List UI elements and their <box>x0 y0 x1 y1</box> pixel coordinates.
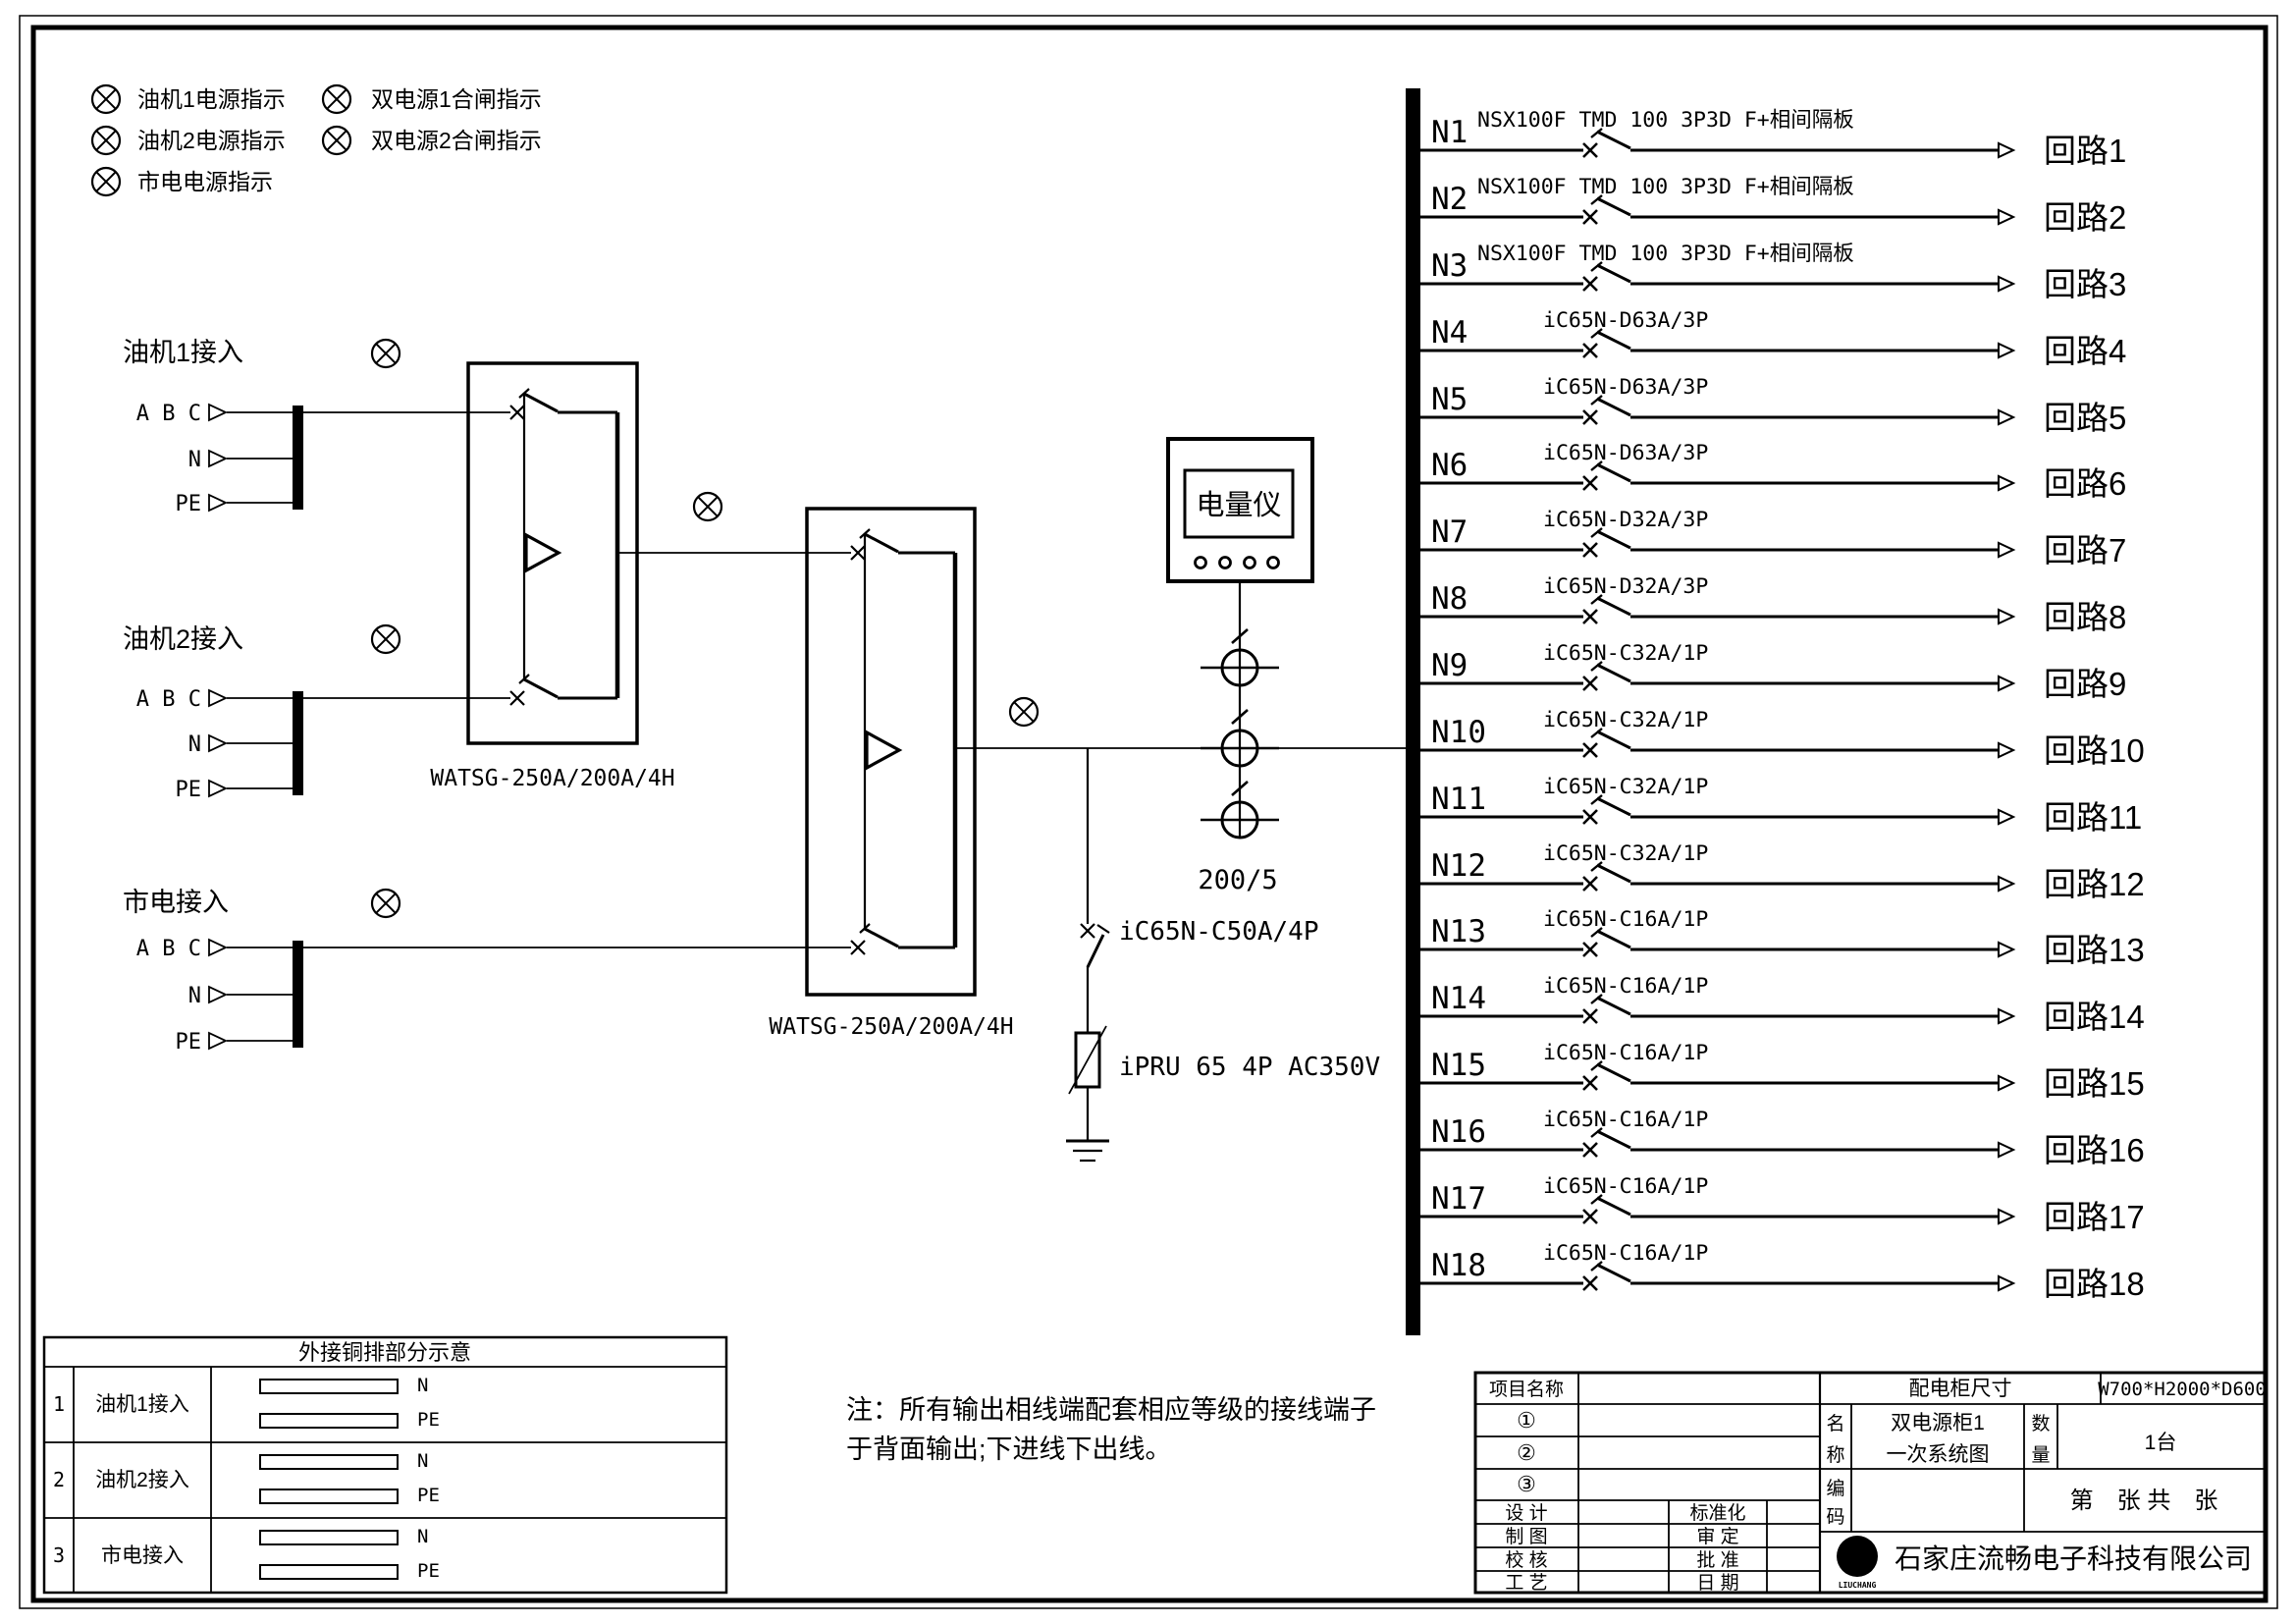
ats-model-label: WATSG-250A/200A/4H <box>769 1014 1013 1040</box>
svg-text:3: 3 <box>53 1543 65 1567</box>
note-line2: 于背面输出;下进线下出线。 <box>846 1435 1172 1464</box>
svg-text:市电接入: 市电接入 <box>101 1544 184 1567</box>
svg-text:N11: N11 <box>1431 782 1486 817</box>
breaker-icon <box>1583 1128 1630 1157</box>
lamp-icon <box>323 85 350 113</box>
breaker-icon <box>1583 262 1630 291</box>
svg-text:N14: N14 <box>1431 981 1486 1016</box>
meter-button-icon <box>1220 558 1231 568</box>
svg-text:N5: N5 <box>1431 382 1468 417</box>
copper-bar <box>260 1531 398 1544</box>
feeder-arrow-icon <box>1999 1076 2013 1090</box>
feeder-arrow-icon <box>1999 743 2013 757</box>
svg-text:回路7: 回路7 <box>2044 532 2126 568</box>
svg-text:NSX100F TMD 100 3P3D F+相间隔板: NSX100F TMD 100 3P3D F+相间隔板 <box>1477 175 1854 199</box>
svg-text:②: ② <box>1517 1440 1536 1465</box>
meter-button-icon <box>1268 558 1279 568</box>
drawing-name-line2: 一次系统图 <box>1887 1443 1990 1466</box>
distribution-busbar <box>1406 88 1420 1335</box>
lamp-icon <box>92 127 120 154</box>
lamp-icon <box>694 493 721 520</box>
circuit-row: N1NSX100F TMD 100 3P3D F+相间隔板回路1 <box>1420 108 2126 169</box>
svg-text:iC65N-C32A/1P: iC65N-C32A/1P <box>1543 841 1708 866</box>
svg-text:量: 量 <box>2031 1445 2050 1466</box>
svg-text:回路14: 回路14 <box>2044 999 2145 1035</box>
contact-blade <box>865 534 898 552</box>
svg-text:N18: N18 <box>1431 1248 1486 1283</box>
legend-item: 油机1电源指示 <box>137 86 286 112</box>
schematic-sheet: 油机1电源指示 油机2电源指示 市电电源指示 双电源1合闸指示 双电源2合闸指示… <box>0 0 2296 1624</box>
phase-label: A B C <box>136 937 201 961</box>
svg-text:回路12: 回路12 <box>2044 866 2145 902</box>
circuit-row: N6iC65N-D63A/3P回路6 <box>1420 441 2126 502</box>
feeder-arrow-icon <box>1999 677 2013 690</box>
legend: 油机1电源指示 油机2电源指示 市电电源指示 双电源1合闸指示 双电源2合闸指示 <box>92 85 542 195</box>
svg-text:N15: N15 <box>1431 1048 1486 1083</box>
svg-text:G: G <box>1849 1542 1865 1572</box>
circuit-row: N5iC65N-D63A/3P回路5 <box>1420 375 2126 436</box>
contact-blade <box>865 929 898 947</box>
legend-item: 市电电源指示 <box>137 169 273 194</box>
feeder-arrow-icon <box>1999 210 2013 224</box>
svg-text:回路17: 回路17 <box>2044 1199 2145 1235</box>
svg-text:N9: N9 <box>1431 648 1468 683</box>
svg-text:制 图: 制 图 <box>1505 1526 1547 1547</box>
svg-text:回路9: 回路9 <box>2044 666 2126 702</box>
feeder-arrow-icon <box>1999 344 2013 357</box>
svg-text:日 期: 日 期 <box>1696 1572 1738 1594</box>
spd-device-label: iPRU 65 4P AC350V <box>1119 1053 1380 1082</box>
svg-text:回路1: 回路1 <box>2044 133 2126 169</box>
circuit-row: N14iC65N-C16A/1P回路14 <box>1420 974 2145 1035</box>
copper-bar <box>260 1414 398 1428</box>
lamp-icon <box>92 85 120 113</box>
mechanism-arrow-icon <box>526 535 559 570</box>
breaker-icon <box>1583 928 1630 956</box>
feeder-arrow-icon <box>1999 277 2013 291</box>
terminal-arrow-icon <box>209 987 226 1002</box>
table-title: 外接铜排部分示意 <box>298 1340 471 1365</box>
circuit-row: N9iC65N-C32A/1P回路9 <box>1420 641 2126 702</box>
svg-text:回路11: 回路11 <box>2044 799 2142 836</box>
svg-text:iC65N-D63A/3P: iC65N-D63A/3P <box>1543 375 1708 400</box>
breaker-icon <box>1583 1262 1630 1290</box>
terminal-arrow-icon <box>209 735 226 751</box>
input-title: 市电接入 <box>123 888 229 917</box>
svg-text:名: 名 <box>1826 1413 1844 1435</box>
svg-text:批 准: 批 准 <box>1696 1549 1738 1571</box>
svg-text:N: N <box>417 1450 428 1472</box>
busbar <box>293 691 303 795</box>
terminal-arrow-icon <box>209 451 226 466</box>
circuit-row: N10iC65N-C32A/1P回路10 <box>1420 708 2145 769</box>
feeder-arrow-icon <box>1999 610 2013 623</box>
svg-text:回路16: 回路16 <box>2044 1132 2145 1168</box>
mechanism-arrow-icon <box>867 732 899 768</box>
svg-text:iC65N-C16A/1P: iC65N-C16A/1P <box>1543 907 1708 932</box>
transfer-switch-2: WATSG-250A/200A/4H <box>769 509 1013 1040</box>
power-meter: 电量仪 200/5 <box>1168 439 1312 895</box>
svg-text:审 定: 审 定 <box>1696 1526 1738 1547</box>
svg-text:回路15: 回路15 <box>2044 1065 2145 1102</box>
svg-text:iC65N-D63A/3P: iC65N-D63A/3P <box>1543 308 1708 333</box>
feeder-arrow-icon <box>1999 410 2013 424</box>
note-line1: 注：所有输出相线端配套相应等级的接线端子 <box>846 1395 1376 1425</box>
legend-item: 双电源2合闸指示 <box>371 128 542 153</box>
breaker-icon <box>1583 329 1630 357</box>
svg-text:iC65N-C32A/1P: iC65N-C32A/1P <box>1543 641 1708 666</box>
svg-text:iC65N-C16A/1P: iC65N-C16A/1P <box>1543 1041 1708 1065</box>
svg-text:N: N <box>417 1375 428 1396</box>
breaker-icon <box>1583 995 1630 1023</box>
svg-text:回路13: 回路13 <box>2044 932 2145 968</box>
lamp-icon <box>92 168 120 195</box>
svg-text:N2: N2 <box>1431 182 1468 217</box>
breaker-icon <box>1583 662 1630 690</box>
feeder-arrow-icon <box>1999 1210 2013 1223</box>
phase-label: A B C <box>136 687 201 712</box>
feeder-arrow-icon <box>1999 543 2013 557</box>
legend-item: 油机2电源指示 <box>137 128 286 153</box>
cabinet-size-label: 配电柜尺寸 <box>1909 1378 2012 1400</box>
lamp-icon <box>372 625 400 653</box>
copper-bar <box>260 1489 398 1503</box>
svg-text:NSX100F TMD 100 3P3D F+相间隔板: NSX100F TMD 100 3P3D F+相间隔板 <box>1477 242 1854 266</box>
phase-label: A B C <box>136 402 201 426</box>
ats-model-label: WATSG-250A/200A/4H <box>430 766 674 791</box>
svg-text:回路18: 回路18 <box>2044 1266 2145 1302</box>
svg-text:N4: N4 <box>1431 315 1468 351</box>
copper-busbar-table: 外接铜排部分示意 1 油机1接入 N PE 2 油机2接入 N PE 3 市电接… <box>44 1337 726 1593</box>
cabinet-size-value: W700*H2000*D600 <box>2098 1379 2267 1400</box>
svg-text:码: 码 <box>1826 1507 1844 1528</box>
svg-text:N12: N12 <box>1431 848 1486 884</box>
feeder-arrow-icon <box>1999 1143 2013 1157</box>
svg-text:iC65N-D63A/3P: iC65N-D63A/3P <box>1543 441 1708 465</box>
neutral-label: N <box>188 448 201 472</box>
feeder-arrow-icon <box>1999 943 2013 956</box>
feeder-arrow-icon <box>1999 476 2013 490</box>
circuit-row: N2NSX100F TMD 100 3P3D F+相间隔板回路2 <box>1420 175 2126 236</box>
transfer-switch-1: WATSG-250A/200A/4H <box>430 363 674 791</box>
svg-text:iC65N-C16A/1P: iC65N-C16A/1P <box>1543 974 1708 999</box>
svg-text:N6: N6 <box>1431 448 1468 483</box>
input-generator1: 油机1接入 A B C N PE <box>123 338 510 516</box>
svg-text:回路10: 回路10 <box>2044 732 2145 769</box>
svg-text:N3: N3 <box>1431 248 1468 284</box>
svg-text:回路6: 回路6 <box>2044 465 2126 502</box>
input-mains: 市电接入 A B C N PE <box>123 888 851 1055</box>
pe-label: PE <box>176 1030 202 1055</box>
meter-label: 电量仪 <box>1196 489 1281 521</box>
pe-label: PE <box>176 778 202 802</box>
svg-text:校 核: 校 核 <box>1505 1549 1547 1571</box>
svg-text:回路2: 回路2 <box>2044 199 2126 236</box>
ct-ratio-label: 200/5 <box>1198 865 1277 895</box>
terminal-arrow-icon <box>209 1033 226 1049</box>
svg-text:iC65N-D32A/3P: iC65N-D32A/3P <box>1543 508 1708 532</box>
breaker-icon <box>1583 1195 1630 1223</box>
drawing-name-line1: 双电源柜1 <box>1891 1412 1985 1435</box>
input-title: 油机1接入 <box>123 338 243 367</box>
sheet-number: 第 张 共 张 <box>2070 1488 2218 1514</box>
spd-branch: iC65N-C50A/4P iPRU 65 4P AC350V <box>1066 748 1380 1161</box>
meter-button-icon <box>1245 558 1255 568</box>
svg-text:N: N <box>417 1526 428 1547</box>
copper-bar <box>260 1380 398 1393</box>
legend-item: 双电源1合闸指示 <box>371 86 542 112</box>
svg-text:油机2接入: 油机2接入 <box>95 1469 189 1491</box>
circuit-row: N15iC65N-C16A/1P回路15 <box>1420 1041 2145 1102</box>
circuit-row: N17iC65N-C16A/1P回路17 <box>1420 1174 2145 1235</box>
svg-text:N10: N10 <box>1431 715 1486 750</box>
svg-text:①: ① <box>1517 1408 1536 1433</box>
lamp-icon <box>372 340 400 367</box>
breaker-icon <box>1583 396 1630 424</box>
svg-text:PE: PE <box>417 1560 440 1582</box>
svg-text:PE: PE <box>417 1485 440 1506</box>
svg-text:油机1接入: 油机1接入 <box>95 1393 189 1416</box>
pe-label: PE <box>176 492 202 516</box>
busbar <box>293 406 303 510</box>
svg-text:iC65N-D32A/3P: iC65N-D32A/3P <box>1543 574 1708 599</box>
note: 注：所有输出相线端配套相应等级的接线端子 于背面输出;下进线下出线。 <box>846 1395 1376 1464</box>
breaker-icon <box>1583 1061 1630 1090</box>
neutral-label: N <box>188 732 201 757</box>
svg-text:1: 1 <box>53 1392 65 1416</box>
lamp-icon <box>372 890 400 917</box>
breaker-icon <box>1583 528 1630 557</box>
breaker-icon <box>1583 129 1630 157</box>
contact-blade <box>524 679 558 697</box>
circuit-row: N16iC65N-C16A/1P回路16 <box>1420 1108 2145 1168</box>
svg-text:iC65N-C16A/1P: iC65N-C16A/1P <box>1543 1108 1708 1132</box>
svg-text:标准化: 标准化 <box>1689 1502 1745 1524</box>
neutral-label: N <box>188 984 201 1008</box>
terminal-arrow-icon <box>209 940 226 955</box>
feeder-arrow-icon <box>1999 1009 2013 1023</box>
breaker-icon <box>1583 729 1630 757</box>
svg-text:N7: N7 <box>1431 514 1468 550</box>
svg-text:回路4: 回路4 <box>2044 333 2126 369</box>
quantity-value: 1台 <box>2145 1432 2177 1454</box>
circuit-row: N4iC65N-D63A/3P回路4 <box>1420 308 2126 369</box>
feeder-arrow-icon <box>1999 143 2013 157</box>
terminal-arrow-icon <box>209 690 226 706</box>
svg-text:PE: PE <box>417 1409 440 1431</box>
svg-text:iC65N-C16A/1P: iC65N-C16A/1P <box>1543 1241 1708 1266</box>
circuit-row: N7iC65N-D32A/3P回路7 <box>1420 508 2126 568</box>
svg-text:设 计: 设 计 <box>1505 1502 1547 1524</box>
svg-text:回路5: 回路5 <box>2044 400 2126 436</box>
svg-text:iC65N-C32A/1P: iC65N-C32A/1P <box>1543 708 1708 732</box>
contact-blade <box>1088 935 1103 967</box>
circuit-rows: N1NSX100F TMD 100 3P3D F+相间隔板回路1 N2NSX10… <box>1420 108 2145 1302</box>
svg-text:N13: N13 <box>1431 914 1486 949</box>
busbar <box>293 941 303 1048</box>
input-title: 油机2接入 <box>123 624 243 654</box>
breaker-icon <box>1583 795 1630 824</box>
svg-text:回路8: 回路8 <box>2044 599 2126 635</box>
breaker-icon <box>1583 595 1630 623</box>
spd-breaker-label: iC65N-C50A/4P <box>1119 917 1319 947</box>
copper-bar <box>260 1455 398 1469</box>
terminal-arrow-icon <box>209 405 226 420</box>
logo-subtext: LIUCHANG <box>1839 1581 1877 1590</box>
copper-bar <box>260 1565 398 1579</box>
circuit-row: N3NSX100F TMD 100 3P3D F+相间隔板回路3 <box>1420 242 2126 302</box>
svg-text:数: 数 <box>2031 1413 2050 1435</box>
meter-button-icon <box>1196 558 1206 568</box>
terminal-arrow-icon <box>209 781 226 796</box>
outer-border <box>20 16 2277 1608</box>
svg-text:N8: N8 <box>1431 581 1468 617</box>
svg-text:N17: N17 <box>1431 1181 1486 1217</box>
circuit-row: N18iC65N-C16A/1P回路18 <box>1420 1241 2145 1302</box>
feeder-arrow-icon <box>1999 810 2013 824</box>
lamp-icon <box>323 127 350 154</box>
feeder-arrow-icon <box>1999 1276 2013 1290</box>
svg-text:iC65N-C16A/1P: iC65N-C16A/1P <box>1543 1174 1708 1199</box>
lamp-icon <box>1010 698 1038 726</box>
circuit-row: N11iC65N-C32A/1P回路11 <box>1420 775 2142 836</box>
feeder-arrow-icon <box>1999 877 2013 891</box>
breaker-icon <box>1583 195 1630 224</box>
svg-text:编: 编 <box>1826 1478 1844 1499</box>
company-name: 石家庄流畅电子科技有限公司 <box>1895 1543 2252 1574</box>
circuit-row: N12iC65N-C32A/1P回路12 <box>1420 841 2145 902</box>
circuit-row: N8iC65N-D32A/3P回路8 <box>1420 574 2126 635</box>
project-name-label: 项目名称 <box>1489 1379 1564 1400</box>
svg-text:N1: N1 <box>1431 115 1468 150</box>
terminal-arrow-icon <box>209 495 226 511</box>
svg-text:称: 称 <box>1826 1444 1844 1466</box>
breaker-icon <box>1583 862 1630 891</box>
svg-text:回路3: 回路3 <box>2044 266 2126 302</box>
svg-text:工 艺: 工 艺 <box>1505 1572 1547 1594</box>
svg-text:iC65N-C32A/1P: iC65N-C32A/1P <box>1543 775 1708 799</box>
svg-text:N16: N16 <box>1431 1114 1486 1150</box>
contact-blade <box>524 394 558 411</box>
title-block: 项目名称 ① ② ③ 设 计 制 图 校 核 工 艺 标准化 审 定 批 准 日… <box>1475 1373 2267 1594</box>
svg-text:2: 2 <box>53 1468 65 1491</box>
svg-text:③: ③ <box>1517 1472 1536 1496</box>
breaker-icon <box>1583 461 1630 490</box>
circuit-row: N13iC65N-C16A/1P回路13 <box>1420 907 2145 968</box>
svg-text:NSX100F TMD 100 3P3D F+相间隔板: NSX100F TMD 100 3P3D F+相间隔板 <box>1477 108 1854 133</box>
